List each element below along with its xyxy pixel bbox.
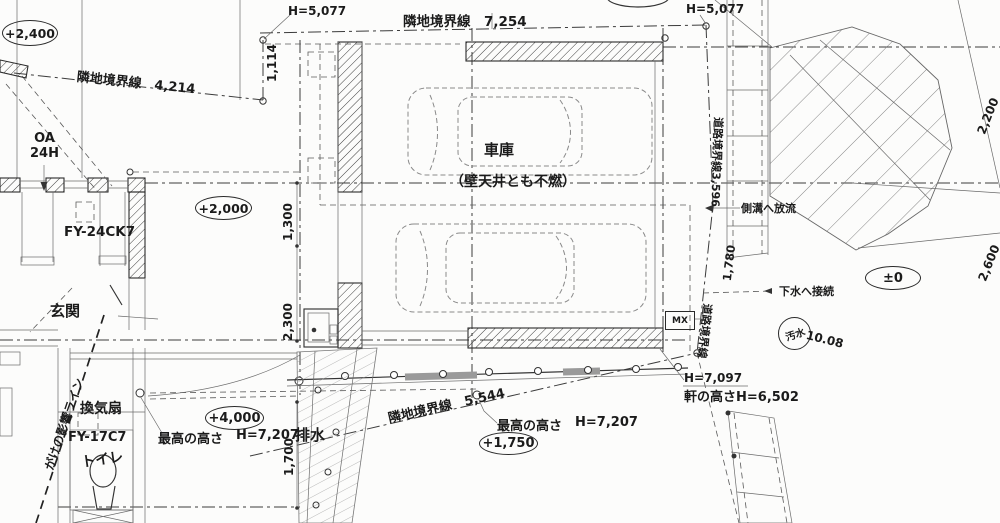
level-badge-0: ±0 bbox=[865, 266, 921, 290]
fan-model-lower: FY-17C7 bbox=[68, 430, 126, 445]
level-badge-2400: +2,400 bbox=[2, 20, 58, 46]
room-label-garage: 車庫 bbox=[484, 139, 514, 160]
boundary-label-road-upper: 道路境界線3,596 bbox=[707, 117, 726, 207]
room-label-entrance: 玄関 bbox=[50, 300, 80, 321]
sewage-text: 汚水 bbox=[783, 323, 807, 343]
fan-label: 換気扇 bbox=[80, 398, 122, 418]
dim-2300: 2,300 bbox=[281, 303, 295, 341]
mx-box: MX bbox=[665, 311, 695, 330]
level-2400-text: +2,400 bbox=[5, 26, 55, 41]
dim-1300: 1,300 bbox=[281, 203, 295, 241]
level-2000-text: +2,000 bbox=[198, 201, 248, 216]
level-badge-1750: +1,750 bbox=[479, 432, 538, 455]
top-ellipse bbox=[607, 0, 669, 7]
24h-text: 24H bbox=[30, 147, 59, 162]
garage-note: （壁天井とも不燃） bbox=[450, 171, 576, 191]
car-bottom bbox=[396, 224, 646, 312]
max-height-right: 最高の高さ H=7,207 bbox=[497, 415, 638, 434]
level-4000-text: +4,000 bbox=[208, 411, 260, 426]
level-1750-text: +1,750 bbox=[482, 436, 534, 451]
height-label-5077-right: H=5,077 bbox=[686, 2, 744, 16]
height-label-7097: H=7,097 bbox=[684, 371, 742, 385]
max-height-left: 最高の高さ H=7,207 bbox=[158, 428, 299, 447]
note-drain: 排水 bbox=[295, 424, 325, 445]
boundary-lines bbox=[14, 23, 739, 523]
level-badge-2000: +2,000 bbox=[195, 196, 252, 220]
height-label-5077-left: H=5,077 bbox=[288, 4, 346, 18]
level-0-text: ±0 bbox=[883, 271, 903, 286]
utility-sink bbox=[304, 309, 338, 347]
car-top bbox=[408, 88, 652, 175]
house-walls bbox=[0, 178, 297, 523]
note-sewer: 下水へ接続 bbox=[779, 283, 834, 299]
level-badge-4000: +4,000 bbox=[205, 406, 264, 430]
blueprint-canvas: { "drawing": { "levels": { "l2400": "+2,… bbox=[0, 0, 1000, 523]
boundary-label-top: 隣地境界線 7,254 bbox=[403, 10, 527, 30]
eave-height-label: 軒の高さH=6,502 bbox=[684, 386, 799, 405]
fan-model-upper: FY-24CK7 bbox=[64, 224, 135, 240]
oa-vent-label: OA 24H bbox=[30, 132, 59, 162]
dim-1114: 1,114 bbox=[265, 44, 279, 82]
dim-1700: 1,700 bbox=[282, 438, 296, 476]
mx-text: MX bbox=[672, 316, 688, 326]
oa-text: OA bbox=[30, 132, 59, 147]
max-height-right-value: H=7,207 bbox=[575, 415, 638, 434]
note-gutter: 側溝へ放流 bbox=[741, 200, 796, 216]
max-height-left-label: 最高の高さ bbox=[158, 428, 223, 447]
